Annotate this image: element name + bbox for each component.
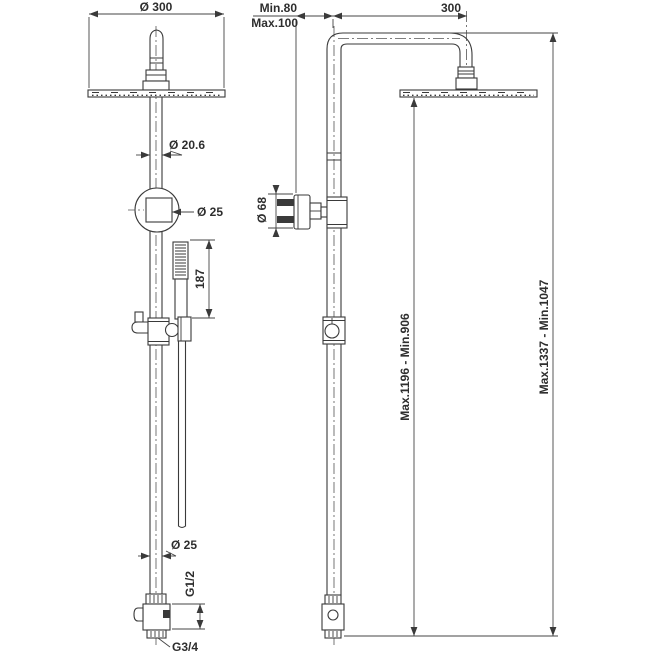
side-wall-bracket xyxy=(277,195,347,229)
side-wall-flange-diameter-label: Ø 68 xyxy=(255,197,269,223)
side-wall-distance-min-label: Min.80 xyxy=(260,1,298,15)
side-slider-joint xyxy=(323,317,345,344)
front-inlet-thread-label: G1/2 xyxy=(183,571,197,597)
front-riser-diameter-dimension: Ø 20.6 xyxy=(136,138,205,155)
front-bottom-riser-diameter-dimension: Ø 25 xyxy=(138,538,197,556)
front-inlet-thread-dimension: G1/2 xyxy=(172,571,205,629)
side-total-height-label: Max.1337 - Min.1047 xyxy=(537,279,551,394)
drawing-canvas: Ø 300 Ø 20.6 xyxy=(0,0,655,655)
front-diverter xyxy=(128,188,179,232)
side-view: Min.80 Max.100 300 xyxy=(251,1,558,648)
side-head-height-dimension: Max.1196 - Min.906 xyxy=(398,98,414,636)
side-supply-valve xyxy=(322,595,344,638)
front-valve-knob xyxy=(163,610,170,618)
side-head-height-label: Max.1196 - Min.906 xyxy=(398,313,412,421)
front-outlet-thread-label: G3/4 xyxy=(172,640,198,654)
side-arm-projection-dimension: 300 xyxy=(333,1,467,16)
front-slider-diameter-dimension: Ø 25 xyxy=(172,205,223,219)
front-riser-diameter-label: Ø 20.6 xyxy=(169,138,205,152)
side-total-height-dimension: Max.1337 - Min.1047 xyxy=(449,33,558,636)
front-supply-valve xyxy=(134,594,170,638)
front-slider-diameter-label: Ø 25 xyxy=(197,205,223,219)
side-shower-head xyxy=(400,67,537,97)
side-arm-projection-label: 300 xyxy=(441,1,461,15)
wall-bracket-prong-bottom xyxy=(277,216,295,223)
front-shower-hose xyxy=(179,341,186,528)
front-shower-head xyxy=(88,30,225,97)
front-hand-shower xyxy=(173,242,188,319)
side-wall-distance-max-label: Max.100 xyxy=(251,16,298,30)
side-wall-distance-dimension: Min.80 Max.100 xyxy=(251,1,345,193)
front-outlet-thread-dimension: G3/4 xyxy=(158,638,198,654)
front-handshower-length-label: 187 xyxy=(193,269,207,289)
shower-column-drawing: Ø 300 Ø 20.6 xyxy=(0,0,655,655)
front-head-diameter-label: Ø 300 xyxy=(140,0,173,14)
front-bottom-riser-diameter-label: Ø 25 xyxy=(171,538,197,552)
side-wall-flange-diameter-dimension: Ø 68 xyxy=(255,186,293,236)
front-view: Ø 300 Ø 20.6 xyxy=(88,0,225,654)
wall-bracket-prong-top xyxy=(277,199,295,206)
front-handshower-length-dimension: 187 xyxy=(190,240,215,318)
